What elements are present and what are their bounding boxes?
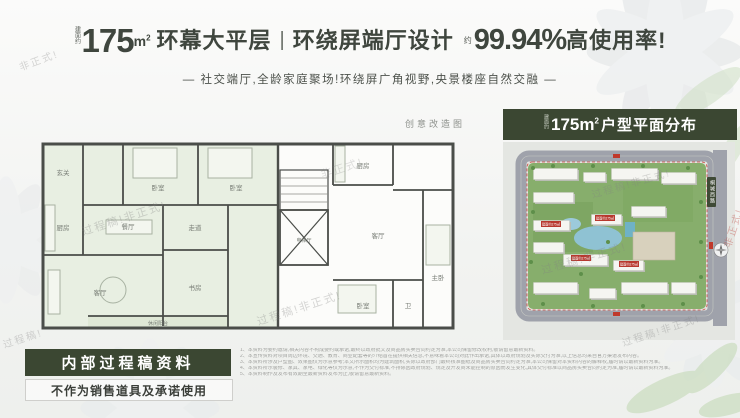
room-label: 厨房	[57, 223, 70, 232]
rate-suffix: 高使用率!	[566, 30, 666, 52]
unit-chip-label: 建面约175㎡	[542, 222, 561, 227]
room-label: 厨房	[357, 161, 370, 170]
headline-left: 环幕大平层	[157, 30, 272, 52]
rate-approx-label: 约	[464, 35, 472, 46]
siteplan-drawing: 建面约175㎡ 建面约175㎡ 建面约175㎡ 建面约175㎡	[503, 142, 735, 340]
room-label: 休闲阳台	[148, 320, 168, 327]
unit-chip-label: 建面约175㎡	[620, 262, 639, 267]
not-for-sale-note: 不作为销售道具及承诺使用	[25, 379, 233, 401]
unit-chip-label: 建面约175㎡	[572, 256, 591, 261]
siteplan-area-number: 175m2	[551, 115, 599, 135]
room-label: 客厅	[94, 288, 108, 297]
clubhouse-building	[633, 232, 675, 260]
area-number: 175	[82, 24, 134, 57]
room-label: 书房	[189, 283, 202, 292]
room-label: 餐厅	[122, 222, 136, 231]
room-label: 走道	[189, 223, 203, 232]
area-prefix-label: 建面约	[74, 26, 80, 56]
disclaimer-line: 5、本资料制作及发布有效期至最新资料发布为止,敬请留意最新资料。	[240, 372, 734, 378]
room-label: 客厅	[372, 231, 386, 240]
subtitle: — 社交端厅,全龄家庭聚场!环绕屏广角视野,央景楼座自然交融 —	[0, 71, 740, 87]
siteplan-area-prefix: 建面约	[543, 114, 548, 136]
room-label: 卧室	[230, 183, 244, 192]
road-name-label: 桐城西路	[707, 177, 716, 207]
internal-draft-stamp: 内部过程稿资料	[25, 349, 231, 376]
rate-number: 99.94%	[474, 26, 566, 55]
room-label: 电梯厅	[296, 237, 311, 244]
disclaimer-block: 1、本资料为要约邀请,相关内容不构成要约或承诺,最终以政府批文及商品房买卖合同约…	[240, 348, 734, 378]
floorplan-drawing: 玄关 厨房 餐厅 客厅 卧室 卧室 走道 书房 休闲阳台 电梯厅 厨房 客厅 主…	[28, 130, 465, 344]
area-unit: m2	[134, 33, 151, 49]
room-label: 玄关	[57, 168, 71, 177]
headline-divider: |	[280, 29, 285, 52]
headline-mid: 环绕屏端厅设计	[293, 30, 454, 52]
headline: 建面约 175 m2 环幕大平层 | 环绕屏端厅设计 约 99.94% 高使用率…	[0, 24, 740, 57]
room-label: 卧室	[357, 301, 371, 310]
floorplan-caption: 创意改造图	[330, 117, 465, 130]
room-label: 卫	[405, 302, 412, 310]
siteplan-title-banner: 建面约 175m2 户型平面分布	[503, 109, 737, 140]
room-label: 卧室	[152, 183, 166, 192]
room-label: 主卧	[432, 273, 446, 282]
unit-chip-label: 建面约175㎡	[596, 216, 615, 221]
compass-icon	[714, 243, 728, 257]
siteplan-title-text: 户型平面分布	[601, 114, 697, 135]
